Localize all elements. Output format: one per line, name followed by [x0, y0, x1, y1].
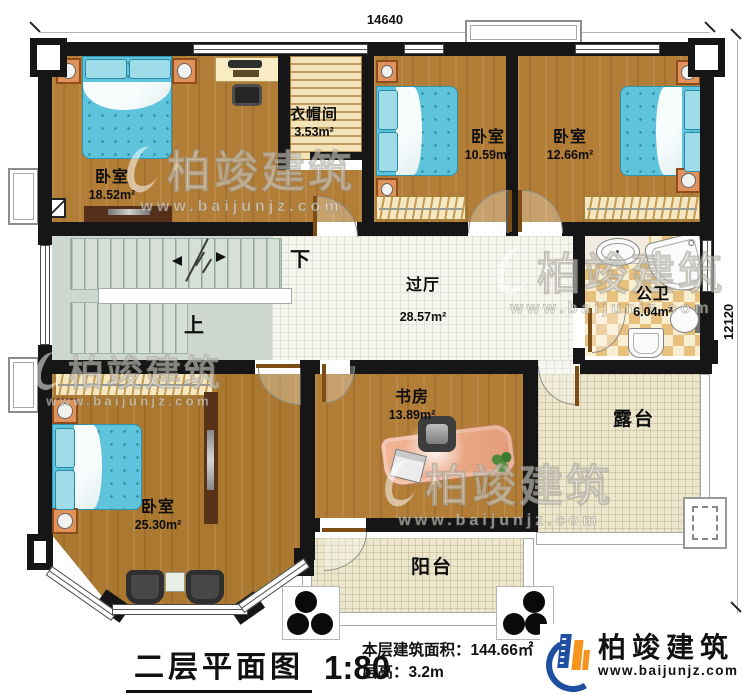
dimension-label-right: 12120: [721, 270, 736, 340]
room-name: 过厅: [378, 276, 468, 296]
planter-circle: [523, 591, 545, 613]
corner-pier-topright: [688, 38, 725, 77]
wall-segment: [523, 374, 538, 532]
planter-circle: [295, 591, 317, 613]
room-name: 衣帽间: [268, 106, 360, 125]
stair-direction-arrow: [172, 256, 182, 266]
keyboard: [233, 70, 259, 77]
room-label-study: 书房 13.89m²: [362, 388, 462, 424]
window: [404, 44, 444, 54]
room-area: 6.04m²: [608, 305, 698, 321]
nightstand: [52, 398, 78, 424]
pillow: [85, 59, 127, 79]
plan-title-block: 二层平面图 1:80: [126, 642, 390, 693]
plan-title: 二层平面图: [126, 642, 312, 693]
dimension-line-top: [40, 32, 710, 33]
pillow: [55, 470, 75, 510]
room-label-bathroom: 公卫 6.04m²: [608, 285, 698, 321]
brand-logo-icon: [544, 626, 592, 684]
floor-area-text: 本层建筑面积：144.66㎡: [362, 640, 533, 662]
laundry-basin-inner: [633, 333, 659, 354]
wardrobe: [584, 196, 700, 220]
wall-segment: [562, 222, 712, 236]
terrace-skylight: [683, 497, 727, 549]
armchair: [126, 570, 164, 604]
room-area: 28.57m²: [378, 310, 468, 326]
bed-sheet: [396, 87, 422, 175]
dimension-label-top: 14640: [345, 12, 425, 27]
brand-logo-block: 柏竣建筑 www.baijunjz.com: [540, 624, 743, 686]
room-label-balcony: 阳台: [392, 556, 472, 580]
stair-down-label: 下: [288, 248, 312, 273]
tv: [108, 209, 150, 215]
door-leaf: [518, 190, 522, 232]
room-label-terrace: 露台: [594, 408, 674, 432]
dimension-tick: [730, 601, 741, 612]
room-area: 10.59m²: [442, 148, 534, 164]
room-name: 卧室: [106, 498, 210, 518]
plan-info-block: 本层建筑面积：144.66㎡ 层高：3.2m: [362, 640, 533, 684]
door-leaf: [313, 196, 317, 236]
stair-direction-arrow: [216, 252, 226, 262]
nightstand: [376, 60, 398, 83]
stair-handrail: [98, 288, 292, 304]
pillow: [129, 59, 171, 79]
room-name: 书房: [362, 388, 462, 408]
plant: [488, 450, 514, 474]
wall-segment: [300, 360, 320, 374]
stair-treads-lower: [70, 302, 188, 354]
wall-segment: [580, 360, 712, 374]
room-label-bedroom-tr: 卧室 12.66m²: [524, 128, 616, 164]
room-label-hall: 过厅 28.57m²: [378, 276, 468, 326]
wall-segment: [300, 374, 315, 560]
corner-pier-topleft: [30, 38, 67, 77]
desk-lamp: [228, 60, 262, 68]
wall-segment: [350, 360, 538, 374]
door-leaf: [508, 190, 512, 232]
pillow: [378, 90, 398, 130]
pillow: [378, 132, 398, 172]
wardrobe: [376, 196, 466, 220]
window: [702, 240, 712, 292]
sink-drain: [616, 250, 619, 253]
wall-segment: [38, 222, 313, 236]
room-area: 25.30m²: [106, 518, 210, 534]
sink: [596, 238, 640, 266]
window-bay-left-upper: [8, 168, 39, 225]
bed-sheet: [74, 425, 102, 509]
brand-website: www.baijunjz.com: [598, 663, 739, 678]
window: [40, 245, 50, 345]
bay-corner-pier: [27, 534, 53, 570]
bay-window: [112, 604, 248, 615]
room-area: 12.66m²: [524, 148, 616, 164]
room-area: 3.53m²: [268, 125, 360, 141]
dimension-line-right: [737, 40, 738, 614]
planter-left: [282, 586, 340, 640]
wall-segment: [573, 236, 585, 308]
room-name: 公卫: [608, 285, 698, 305]
wall-segment: [700, 42, 714, 362]
door-leaf: [322, 528, 366, 532]
window: [193, 44, 368, 54]
door-leaf: [588, 308, 592, 352]
brand-text-block: 柏竣建筑 www.baijunjz.com: [598, 633, 739, 678]
room-label-cloakroom: 衣帽间 3.53m²: [268, 106, 360, 140]
floor-height-text: 层高：3.2m: [362, 662, 533, 684]
nightstand: [172, 58, 197, 84]
room-label-bedroom-tm: 卧室 10.59m²: [442, 128, 534, 164]
window: [575, 44, 660, 54]
wall-segment: [362, 42, 374, 236]
room-label-bedroom-tl: 卧室 18.52m²: [60, 168, 164, 204]
planter-circle: [311, 613, 333, 635]
room-name: 卧室: [442, 128, 534, 148]
side-table: [165, 572, 185, 592]
wall-segment: [300, 518, 320, 532]
stair-up-label: 上: [182, 314, 206, 339]
planter-circle: [287, 613, 309, 635]
wall-pier: [700, 340, 718, 364]
dimension-tick: [730, 28, 741, 39]
armchair: [186, 570, 224, 604]
wall-segment: [38, 360, 255, 374]
wall-segment: [310, 152, 362, 160]
dimension-tick: [704, 21, 715, 32]
window-bay-left-lower: [8, 357, 39, 413]
planter-circle: [503, 613, 525, 635]
desk-chair: [232, 84, 262, 106]
room-label-bedroom-bl: 卧室 25.30m²: [106, 498, 210, 534]
dimension-tick: [29, 21, 40, 32]
pillow: [55, 428, 75, 468]
wall-segment: [366, 518, 538, 532]
bed-sheet: [656, 87, 682, 175]
door-leaf: [256, 364, 300, 368]
wardrobe: [55, 372, 213, 396]
tv: [207, 430, 214, 490]
room-name: 卧室: [524, 128, 616, 148]
terrace-skylight-dashed: [692, 506, 718, 540]
brand-name: 柏竣建筑: [598, 633, 739, 663]
door-leaf: [322, 364, 326, 402]
laundry-basin: [628, 328, 664, 358]
floor-plan-canvas: 14640 12120 下 上 卧室 18.52m²: [0, 0, 750, 696]
desk-chair-seat: [426, 424, 448, 444]
door-leaf: [575, 366, 579, 406]
room-name: 卧室: [60, 168, 164, 188]
nightstand: [52, 508, 78, 534]
room-area: 18.52m²: [60, 188, 164, 204]
room-area: 13.89m²: [362, 408, 462, 424]
